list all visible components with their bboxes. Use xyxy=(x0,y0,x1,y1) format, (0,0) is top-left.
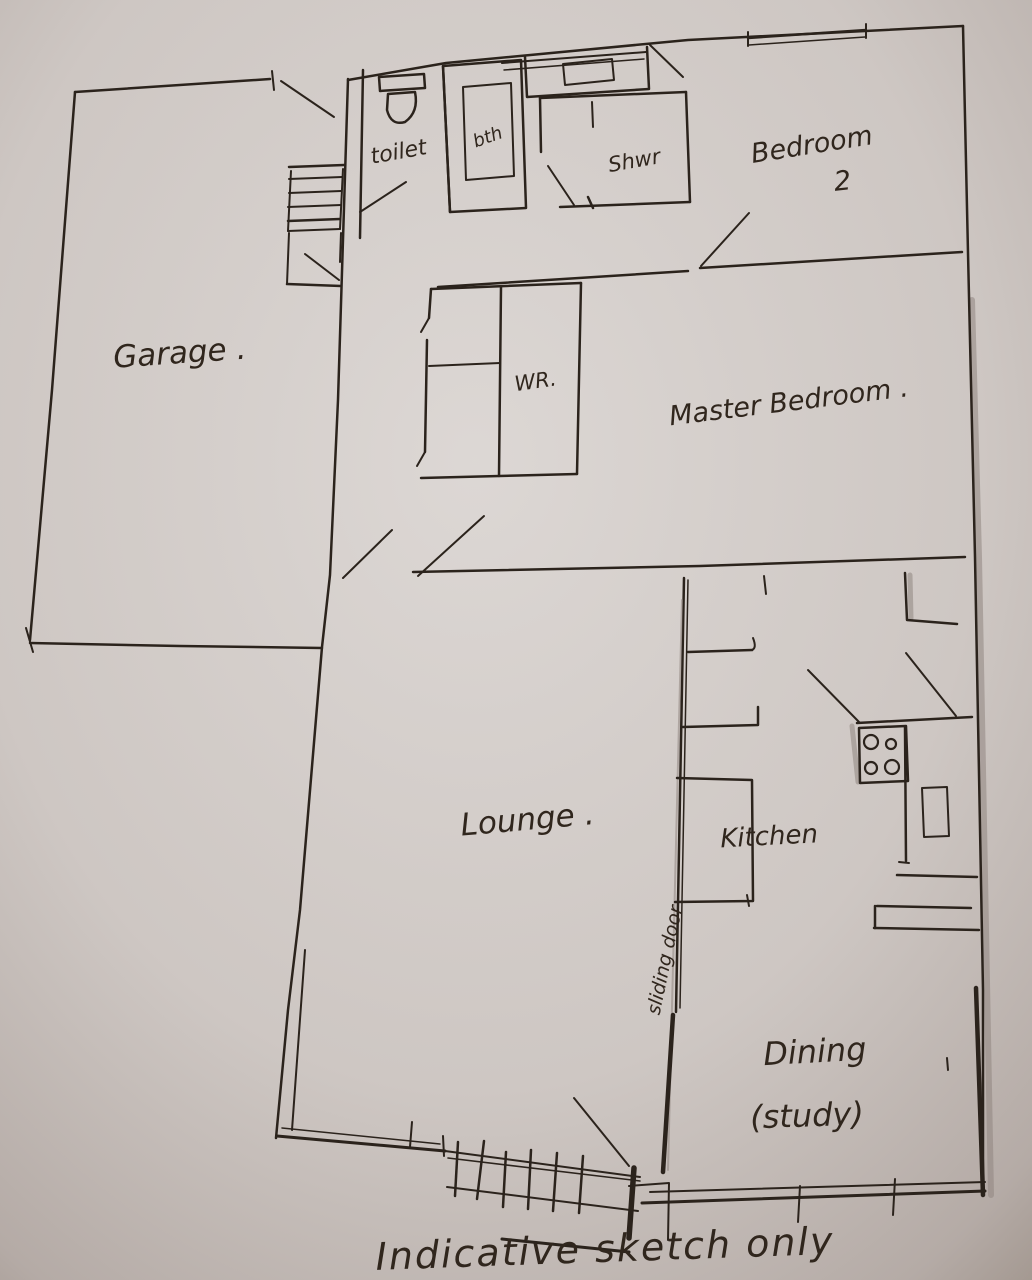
shower-head-tick xyxy=(592,102,593,127)
stair-landing-wall xyxy=(340,233,341,262)
marker-shading xyxy=(910,575,911,618)
wall-end-tick xyxy=(443,1136,444,1156)
counter-edge xyxy=(905,727,906,861)
paper-vignette xyxy=(0,0,1032,1280)
dining-sub-label: (study) xyxy=(749,1094,864,1136)
floor-plan-canvas: Garage . toilet xyxy=(0,0,1032,1280)
wall-tick xyxy=(947,1058,948,1070)
counter-foot-tick xyxy=(899,862,909,863)
kitchen-label: Kitchen xyxy=(720,819,819,854)
bedroom2-number: 2 xyxy=(832,165,852,198)
dining-label: Dining xyxy=(762,1030,867,1073)
shower-left-wall xyxy=(540,98,541,152)
floor-plan-sketch-photo: Garage . toilet xyxy=(0,0,1032,1280)
